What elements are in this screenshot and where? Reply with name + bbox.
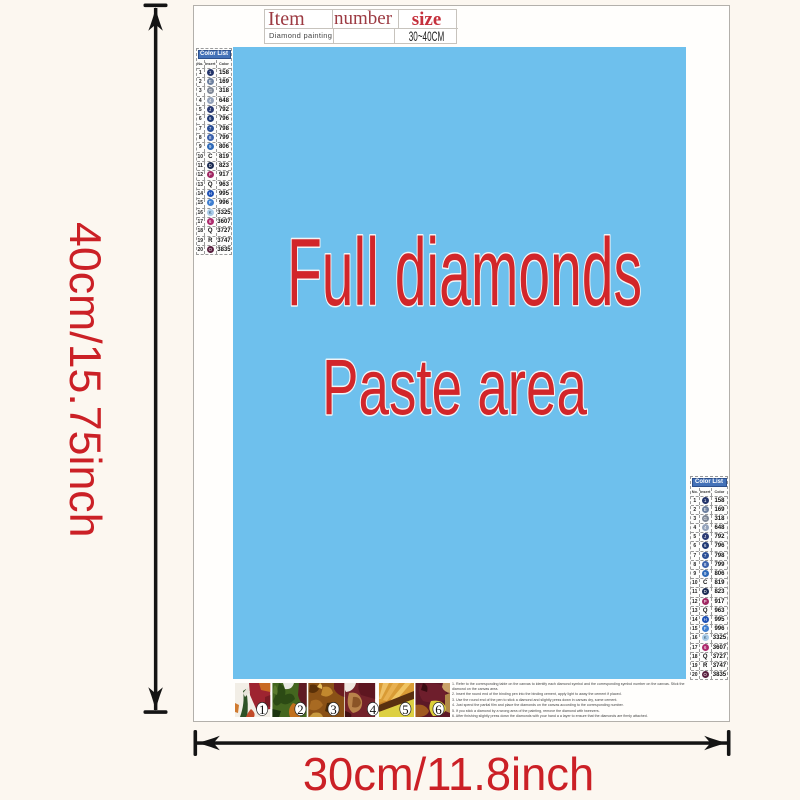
svg-text:2: 2	[297, 702, 304, 717]
svg-text:3: 3	[330, 702, 337, 717]
svg-text:1: 1	[259, 702, 266, 717]
svg-text:4: 4	[370, 702, 377, 717]
svg-text:6: 6	[435, 702, 442, 717]
svg-text:Paste area: Paste area	[322, 343, 587, 431]
svg-text:5: 5	[402, 702, 409, 717]
svg-text:Full diamonds: Full diamonds	[287, 219, 642, 326]
